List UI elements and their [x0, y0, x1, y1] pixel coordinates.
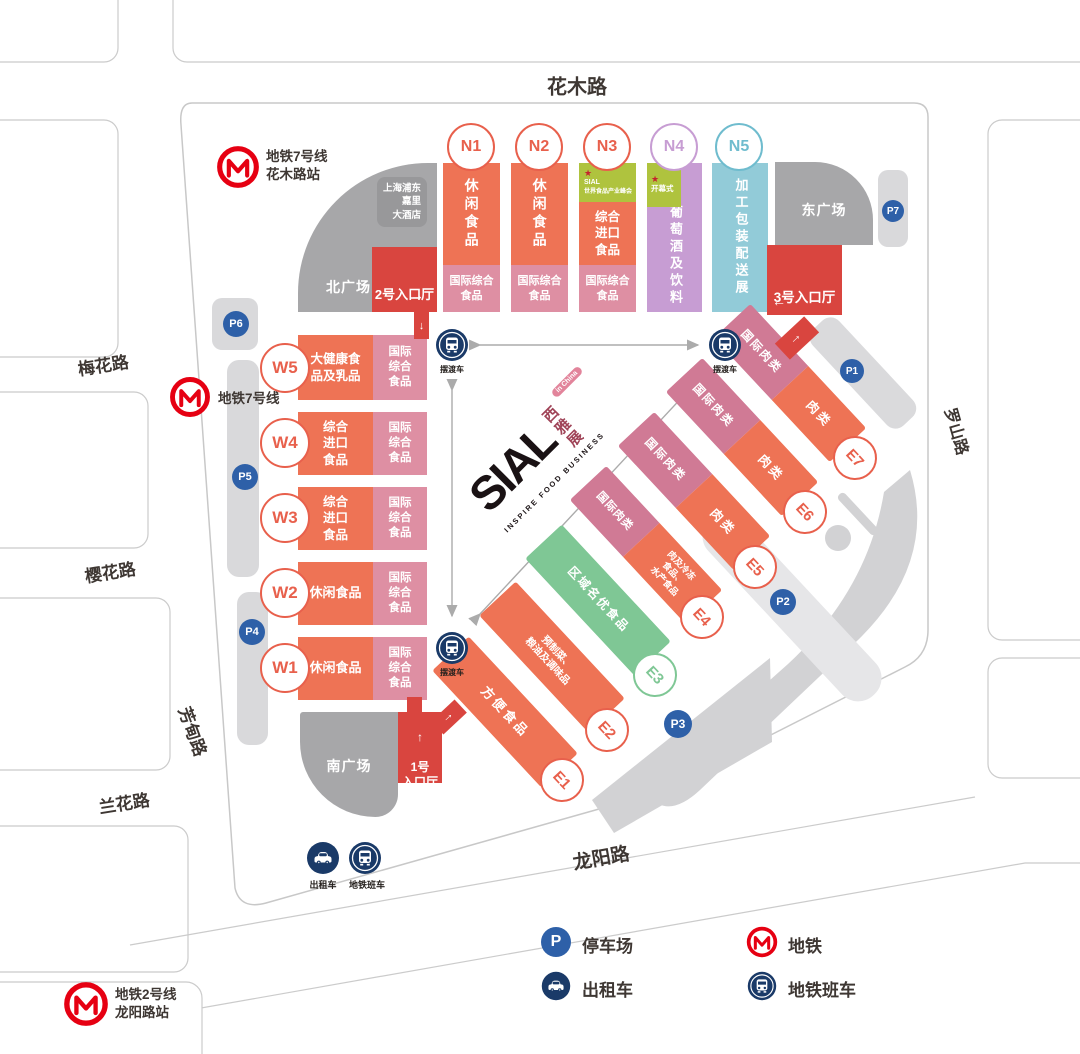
arrow-left-icon: ←: [772, 293, 786, 309]
metro-shuttle-label: 地铁班车: [349, 878, 385, 891]
hall-n3: ★ SIAL 世界食品产业峰会 综合 进口 食品 国际综合 食品: [579, 163, 636, 312]
hall-n3-main-label: 综合 进口 食品: [579, 202, 636, 265]
hall-badge-w5: W5: [260, 343, 310, 393]
paddle-shape: [825, 525, 851, 551]
hotel-kerry: 上海浦东嘉里 大酒店: [377, 177, 427, 227]
hall-w2-sub-label: 国际 综合 食品: [373, 562, 427, 625]
hall-n1-sub-label: 国际综合 食品: [443, 265, 500, 312]
metro-line2-longyang-label: 地铁2号线 龙阳路站: [115, 986, 177, 1022]
east-plaza-label: 东广场: [775, 200, 873, 220]
parking-badge-p5: P5: [232, 464, 258, 490]
hall-w2: 休闲食品 国际 综合 食品: [298, 562, 427, 625]
shuttle-bus-label: 摆渡车: [713, 364, 737, 375]
hall-n3-sub-label: 国际综合 食品: [579, 265, 636, 312]
entrance-hall-2: 2号入口厅 →: [372, 247, 437, 312]
arrow-right-icon: →: [410, 287, 424, 303]
shuttle-bus-icon: [434, 327, 470, 363]
parking-badge-p4: P4: [239, 619, 265, 645]
legend-metro-shuttle-icon: [746, 970, 778, 1002]
parking-badge-p3: P3: [664, 710, 692, 738]
hall-n2-sub-label: 国际综合 食品: [511, 265, 568, 312]
hall-w5: 大健康食 品及乳品 国际 综合 食品: [298, 335, 427, 400]
hall-badge-w1: W1: [260, 643, 310, 693]
legend-parking-label: 停车场: [582, 932, 633, 957]
hall-w1: 休闲食品 国际 综合 食品: [298, 637, 427, 700]
arrow-up-icon: ↑: [442, 710, 456, 724]
hall-badge-n5: N5: [715, 123, 763, 171]
legend-metro-shuttle-label: 地铁班车: [788, 976, 856, 1001]
hall-n3-header-title: SIAL: [584, 178, 600, 187]
arrow-up-icon: ↑: [398, 730, 442, 745]
parking-badge-p6: P6: [223, 311, 249, 337]
taxi-icon: [305, 840, 341, 876]
hall-w1-sub-label: 国际 综合 食品: [373, 637, 427, 700]
hall-badge-n1: N1: [447, 123, 495, 171]
road-label-huamu: 花木路: [547, 71, 607, 100]
star-icon: ★: [651, 175, 659, 184]
venue-map: 花木路 梅花路 樱花路 兰花路 芳甸路 罗山路 龙阳路 北广场 上海浦东嘉里 大…: [0, 0, 1080, 1054]
arrow-down-icon: ↓: [419, 320, 425, 332]
legend-metro-label: 地铁: [788, 932, 822, 957]
entrance-hall-3: 3号入口厅 ←: [767, 245, 842, 315]
metro-line7-label: 地铁7号线: [218, 390, 280, 408]
parking-badge-p2: P2: [770, 589, 796, 615]
metro-logo-icon: [63, 981, 109, 1027]
hall-n2: 休闲食品 国际综合 食品: [511, 163, 568, 312]
metro-logo-icon: [169, 376, 211, 418]
taxi-label: 出租车: [309, 878, 336, 891]
north-plaza-label: 北广场: [326, 277, 371, 297]
hall-w5-sub-label: 国际 综合 食品: [373, 335, 427, 400]
hall-n1-main-label: 休闲食品: [462, 178, 480, 250]
entrance-hall-2-label: 2号入口厅: [372, 284, 437, 303]
parking-badge-p1: P1: [840, 359, 864, 383]
legend-metro-icon: [746, 926, 778, 958]
hall-badge-w2: W2: [260, 568, 310, 618]
legend-parking-icon: P: [541, 927, 571, 957]
hall-badge-n2: N2: [515, 123, 563, 171]
shuttle-bus-icon: [434, 630, 470, 666]
shuttle-bus-icon: [347, 840, 383, 876]
entrance-hall-1-label: 1号 入口厅: [398, 760, 442, 790]
hall-n4-main-label: 葡萄酒及饮料: [666, 205, 683, 307]
hall-n5: 加工包装配送展: [712, 163, 768, 312]
parking-badge-p7: P7: [882, 200, 904, 222]
hall-badge-n3: N3: [583, 123, 631, 171]
hall-n1: 休闲食品 国际综合 食品: [443, 163, 500, 312]
hall-w3-sub-label: 国际 综合 食品: [373, 487, 427, 550]
star-icon: ★: [584, 169, 592, 178]
hall-w4-sub-label: 国际 综合 食品: [373, 412, 427, 475]
hall-badge-n4: N4: [650, 123, 698, 171]
entrance-2-connector: ↓: [414, 312, 429, 339]
hall-badge-w4: W4: [260, 418, 310, 468]
hall-n3-header-sub: 世界食品产业峰会: [584, 188, 632, 196]
hall-n2-main-label: 休闲食品: [530, 178, 548, 250]
hall-n5-main-label: 加工包装配送展: [732, 178, 749, 297]
hall-w4: 综合 进口 食品 国际 综合 食品: [298, 412, 427, 475]
hall-n4: 葡萄酒及饮料 ★ 开幕式: [647, 163, 702, 312]
shuttle-bus-label: 摆渡车: [440, 667, 464, 678]
hall-badge-w3: W3: [260, 493, 310, 543]
hall-n4-header-title: 开幕式: [651, 184, 674, 195]
legend-taxi-icon: [540, 970, 572, 1002]
arrow-up-icon: ↑: [789, 331, 804, 346]
hall-w3: 综合 进口 食品 国际 综合 食品: [298, 487, 427, 550]
south-plaza-label: 南广场: [300, 756, 398, 776]
shuttle-bus-icon: [707, 327, 743, 363]
shuttle-bus-label: 摆渡车: [440, 364, 464, 375]
metro-logo-icon: [216, 145, 260, 189]
legend-taxi-label: 出租车: [582, 976, 633, 1001]
metro-line7-huamu-label: 地铁7号线 花木路站: [266, 148, 328, 184]
entrance-1-connector: [407, 697, 422, 713]
